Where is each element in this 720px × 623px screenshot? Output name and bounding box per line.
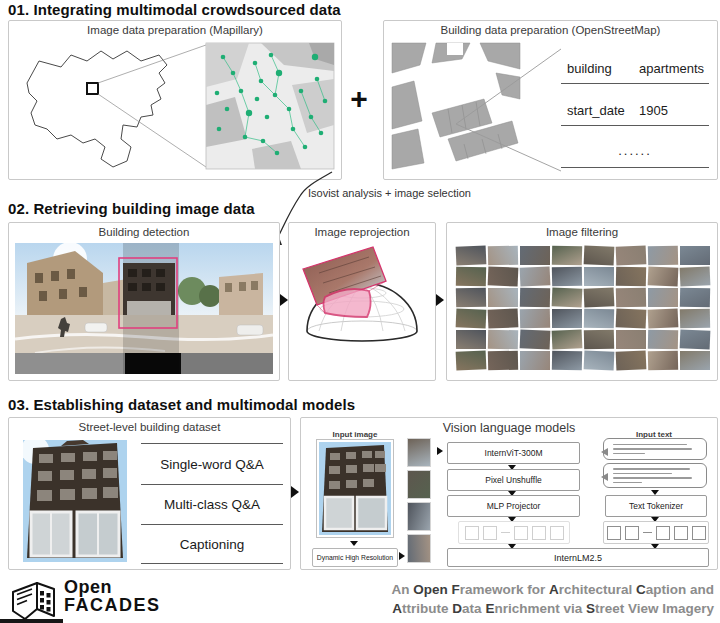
llm-box: InternLM2.5 bbox=[447, 548, 709, 567]
photo-tile bbox=[552, 309, 582, 328]
zoom-marker bbox=[87, 83, 98, 94]
photo-tile bbox=[616, 308, 647, 328]
photo-tile bbox=[680, 351, 710, 370]
photo-tile bbox=[616, 288, 646, 308]
table-divider bbox=[561, 83, 709, 84]
photo-tile bbox=[488, 246, 518, 266]
dataset-panel-label: Street-level building dataset bbox=[9, 421, 290, 433]
photo-tile bbox=[584, 330, 614, 350]
photo-tile bbox=[584, 287, 615, 307]
task-divider bbox=[141, 484, 283, 485]
photo-tile bbox=[488, 351, 518, 371]
photo-tile bbox=[648, 330, 678, 350]
table-divider bbox=[561, 125, 709, 126]
photo-tile bbox=[584, 309, 614, 329]
arrow-down-icon bbox=[350, 541, 358, 546]
photo-tile bbox=[648, 288, 678, 307]
image-tile bbox=[407, 502, 431, 531]
arrow-right-icon bbox=[436, 294, 444, 306]
isovist-annotation: Isovist analysis + image selection bbox=[308, 187, 471, 199]
mlp-projector-box: MLP Projector bbox=[447, 495, 580, 517]
photo-tile bbox=[648, 308, 679, 328]
plus-sign: + bbox=[344, 82, 374, 116]
photo-tile bbox=[520, 246, 550, 265]
openfacades-logo-icon bbox=[10, 578, 60, 622]
dataset-panel: Street-level building dataset Single-wor… bbox=[8, 417, 291, 570]
image-filtering-panel: Image filtering bbox=[446, 222, 718, 381]
photo-tile bbox=[584, 267, 614, 286]
osm-value: apartments bbox=[639, 61, 704, 76]
input-image-frame bbox=[316, 439, 394, 538]
logo-text-open: Open bbox=[64, 578, 112, 596]
section-03-title: 03. Establishing dataset and multimodal … bbox=[8, 396, 355, 413]
photo-tile bbox=[456, 308, 487, 328]
photo-tile bbox=[616, 350, 647, 370]
task-divider bbox=[141, 524, 283, 525]
osm-key: building bbox=[567, 61, 612, 76]
task-divider bbox=[141, 443, 283, 444]
city-outline bbox=[27, 51, 167, 167]
photo-tile bbox=[648, 246, 678, 266]
figure-canvas: 01. Integrating multimodal crowdsourced … bbox=[0, 0, 720, 623]
prompt-bubble bbox=[603, 438, 707, 460]
image-tile-strip bbox=[407, 438, 431, 563]
task-item: Captioning bbox=[141, 537, 283, 552]
tagline: An Open Framework for Architectural Capt… bbox=[294, 581, 714, 618]
arrow-right-icon bbox=[399, 552, 405, 560]
photo-tile bbox=[520, 288, 550, 308]
panorama-image bbox=[15, 243, 273, 374]
photo-tile bbox=[616, 245, 647, 265]
task-divider bbox=[141, 563, 283, 564]
table-divider bbox=[561, 167, 709, 168]
photo-tile bbox=[584, 350, 615, 370]
vlm-panel: Vision language models Input image Dynam… bbox=[300, 417, 718, 570]
photo-tile bbox=[680, 288, 710, 308]
photo-tile bbox=[488, 288, 518, 307]
text-token-row bbox=[603, 521, 709, 544]
photo-tile bbox=[552, 267, 582, 287]
inset-map bbox=[206, 43, 334, 169]
task-item: Single-word Q&A bbox=[141, 457, 283, 472]
building-detection-panel: Building detection bbox=[8, 222, 280, 381]
vision-encoder-box: InternViT-300M bbox=[447, 442, 580, 464]
arrow-right-icon bbox=[280, 294, 288, 306]
photo-tile bbox=[552, 287, 583, 307]
photo-tile bbox=[488, 266, 519, 286]
section-01-title: 01. Integrating multimodal crowdsourced … bbox=[8, 1, 341, 18]
photo-tile bbox=[680, 246, 710, 265]
image-tile bbox=[407, 534, 431, 563]
hemisphere-graphic bbox=[289, 243, 435, 380]
arrow-right-icon bbox=[437, 447, 443, 455]
osm-ellipsis: ...... bbox=[618, 143, 652, 158]
photo-tile bbox=[520, 329, 551, 349]
input-image-photo bbox=[319, 442, 391, 535]
photo-tile bbox=[680, 309, 710, 329]
input-image-label: Input image bbox=[315, 430, 395, 439]
tagline-line2: Attribute Data Enrichment via Street Vie… bbox=[294, 600, 714, 619]
pixel-unshuffle-box: Pixel Unshuffle bbox=[447, 469, 580, 491]
photo-tile bbox=[456, 288, 486, 308]
photo-collage bbox=[456, 246, 710, 370]
dynamic-resolution-box: Dynamic High Resolution bbox=[312, 548, 398, 567]
photo-tile bbox=[648, 266, 679, 286]
photo-tile bbox=[488, 308, 519, 328]
photo-tile bbox=[456, 267, 486, 287]
task-item: Multi-class Q&A bbox=[141, 497, 283, 512]
image-reprojection-label: Image reprojection bbox=[289, 226, 435, 238]
text-tokenizer-box: Text Tokenizer bbox=[605, 495, 707, 517]
building-photo bbox=[23, 440, 127, 562]
bottom-edge-bar bbox=[0, 619, 63, 623]
photo-tile bbox=[680, 329, 711, 349]
image-filtering-label: Image filtering bbox=[447, 226, 717, 238]
photo-tile bbox=[520, 351, 550, 370]
photo-tile bbox=[616, 267, 646, 287]
logo-text-facades: FACADES bbox=[64, 596, 161, 614]
photo-tile bbox=[584, 245, 615, 265]
osm-key: start_date bbox=[567, 103, 625, 118]
photo-tile bbox=[616, 330, 646, 349]
prompt-bubble bbox=[603, 463, 707, 488]
osm-value: 1905 bbox=[639, 103, 668, 118]
photo-tile bbox=[552, 351, 582, 371]
photo-tile bbox=[488, 330, 518, 350]
photo-tile bbox=[456, 330, 486, 349]
photo-tile bbox=[552, 329, 583, 349]
photo-tile bbox=[520, 309, 550, 329]
section-02-title: 02. Retrieving building image data bbox=[8, 200, 255, 217]
image-tile bbox=[407, 470, 431, 499]
photo-tile bbox=[648, 351, 678, 371]
photo-tile bbox=[680, 266, 711, 286]
photo-tile bbox=[552, 246, 582, 266]
photo-tile bbox=[456, 245, 487, 265]
image-tile bbox=[407, 438, 431, 467]
building-detection-label: Building detection bbox=[9, 226, 279, 238]
photo-tile bbox=[456, 350, 487, 370]
tagline-line1: An Open Framework for Architectural Capt… bbox=[294, 581, 714, 600]
image-reprojection-panel: Image reprojection bbox=[288, 222, 436, 381]
arrow-right-icon bbox=[291, 486, 299, 498]
image-token-row bbox=[458, 521, 570, 544]
osm-table-row: ...... bbox=[561, 143, 709, 158]
photo-tile bbox=[520, 266, 551, 286]
